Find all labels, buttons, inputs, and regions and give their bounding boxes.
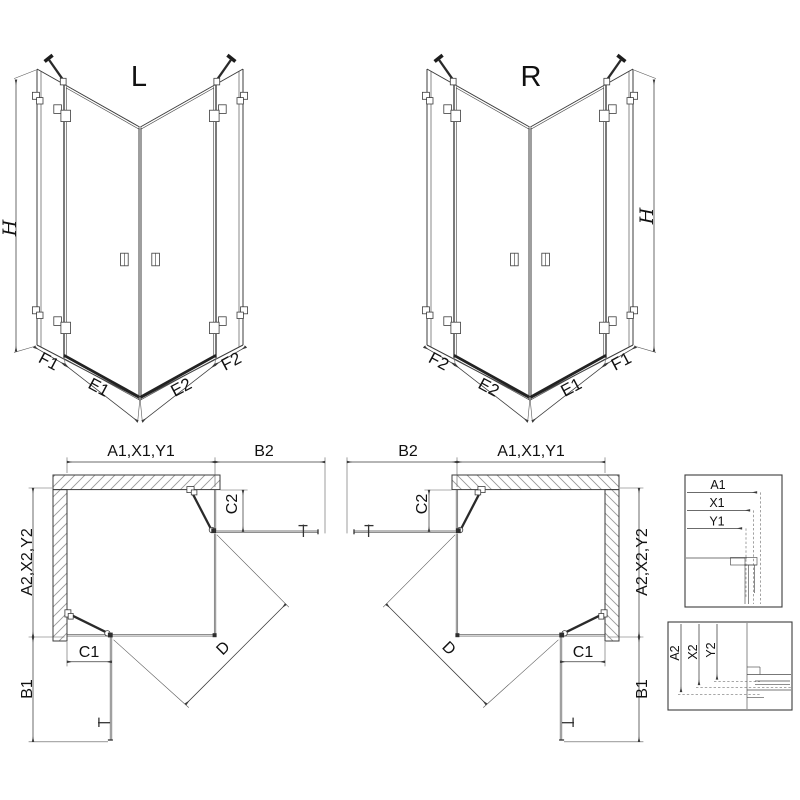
detail-box-width [685, 475, 782, 607]
iso-right-f1-label: F1 [608, 348, 634, 374]
plan-left-b1-label: B1 [19, 679, 36, 699]
detail-a1-label: A1 [710, 478, 725, 492]
plan-left-b2-label: B2 [254, 443, 274, 460]
plan-left-c1-label: C1 [79, 644, 100, 661]
plan-left-geometry [29, 457, 325, 741]
iso-right-e2-label: E2 [475, 374, 502, 401]
plan-view-right [347, 457, 643, 741]
plan-right-width-label: A1,X1,Y1 [497, 443, 565, 460]
iso-right-variant-label: R [521, 61, 542, 93]
plan-right-d-label: D [438, 639, 458, 659]
plan-right-c1-label: C1 [573, 644, 594, 661]
tray-profile-section [747, 623, 791, 709]
plan-view-left [29, 457, 325, 741]
iso-right-e1-label: E1 [558, 374, 585, 401]
plan-left-d-label: D [213, 639, 233, 659]
shower-enclosure-technical-drawing: L H F1 E1 E2 F2 R H F2 E2 E1 F1 A1,X1,Y1… [0, 0, 800, 800]
plan-right-geometry [347, 457, 643, 741]
drawing-canvas: L H F1 E1 E2 F2 R H F2 E2 E1 F1 A1,X1,Y1… [0, 0, 800, 800]
detail-x1-label: X1 [709, 496, 724, 510]
detail-a2-label: A2 [668, 645, 682, 660]
iso-right-f2-label: F2 [426, 348, 452, 374]
plan-right-c2-label: C2 [414, 494, 431, 515]
plan-right-depth-label: A2,X2,Y2 [634, 528, 651, 596]
iso-left-f1-label: F1 [36, 348, 62, 374]
iso-right-height-label: H [636, 207, 658, 225]
plan-right-b1-label: B1 [634, 679, 651, 699]
detail-x2-label: X2 [686, 644, 700, 659]
plan-right-b2-label: B2 [398, 443, 418, 460]
iso-left-e1-label: E1 [85, 374, 112, 401]
detail-y2-label: Y2 [704, 642, 718, 657]
detail-y1-label: Y1 [709, 515, 724, 529]
plan-left-depth-label: A2,X2,Y2 [19, 528, 36, 596]
iso-left-f2-label: F2 [218, 348, 244, 374]
iso-left-variant-label: L [131, 61, 147, 93]
plan-left-c2-label: C2 [224, 494, 241, 515]
iso-left-e2-label: E2 [168, 374, 195, 401]
detail-box-depth [668, 622, 792, 710]
iso-left-height-label: H [0, 219, 21, 237]
plan-left-width-label: A1,X1,Y1 [107, 443, 175, 460]
